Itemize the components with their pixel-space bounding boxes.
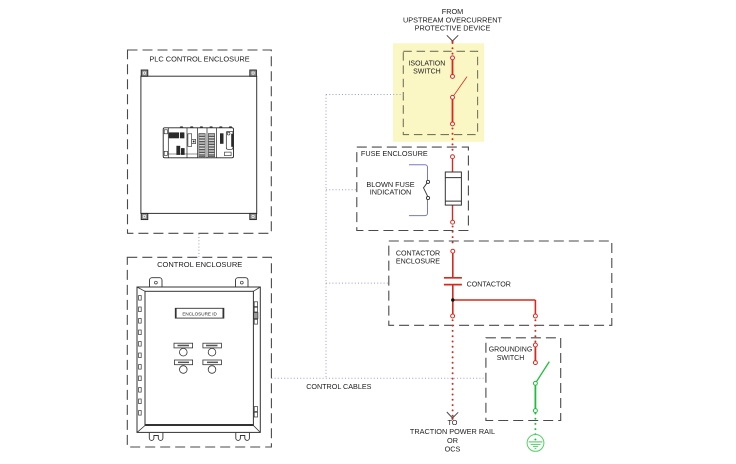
- svg-text:ENCLOSURE ID: ENCLOSURE ID: [182, 311, 217, 316]
- svg-text:TRACTION POWER RAIL: TRACTION POWER RAIL: [410, 427, 495, 436]
- svg-text:INDICATION: INDICATION: [370, 187, 412, 196]
- svg-text:OCS: OCS: [445, 445, 461, 454]
- svg-text:FUSE ENCLOSURE: FUSE ENCLOSURE: [361, 149, 428, 158]
- svg-text:ENCLOSURE: ENCLOSURE: [396, 258, 440, 266]
- svg-text:CONTACTOR: CONTACTOR: [396, 250, 440, 258]
- svg-text:GROUNDING: GROUNDING: [489, 347, 533, 354]
- svg-text:ISOLATION: ISOLATION: [408, 60, 445, 67]
- svg-text:CONTACTOR: CONTACTOR: [467, 280, 511, 288]
- svg-text:SWITCH: SWITCH: [497, 355, 525, 362]
- svg-text:CONTROL CABLES: CONTROL CABLES: [306, 382, 371, 391]
- svg-text:SWITCH: SWITCH: [413, 69, 441, 76]
- svg-text:TO: TO: [447, 418, 457, 427]
- svg-text:PLC CONTROL ENCLOSURE: PLC CONTROL ENCLOSURE: [149, 55, 249, 64]
- svg-text:PROTECTIVE DEVICE: PROTECTIVE DEVICE: [415, 24, 491, 33]
- svg-text:CONTROL ENCLOSURE: CONTROL ENCLOSURE: [157, 260, 242, 269]
